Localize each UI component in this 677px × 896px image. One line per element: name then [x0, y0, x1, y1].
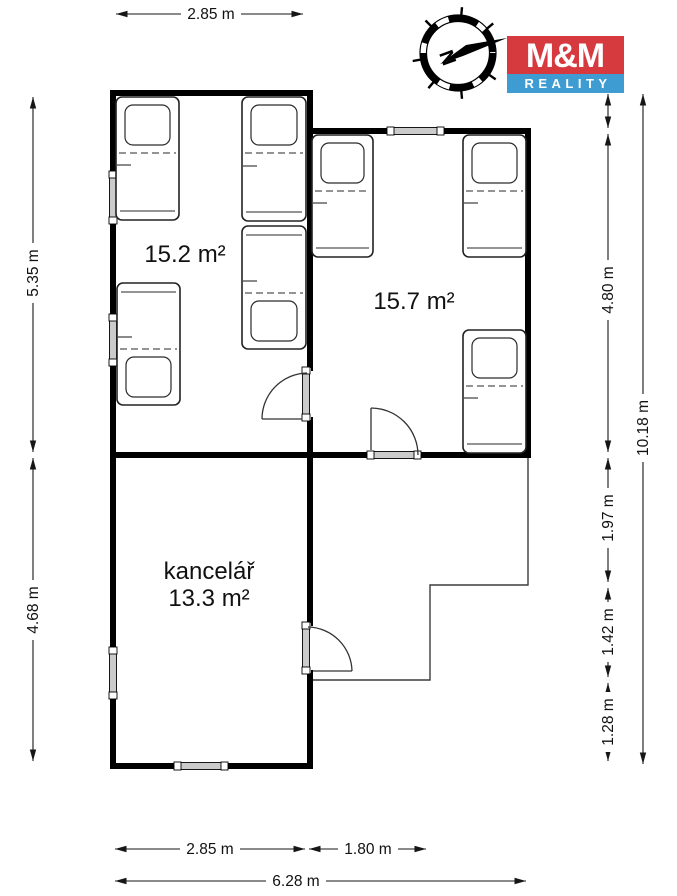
dimension-bottom-office: 2.85 m — [115, 840, 305, 858]
door — [262, 367, 311, 421]
bed — [312, 135, 373, 257]
logo-text-reality: REALITY — [524, 76, 611, 91]
bed — [242, 97, 306, 221]
door — [301, 622, 352, 674]
dimension-bottom-annex: 1.80 m — [309, 840, 426, 858]
bed — [463, 135, 526, 257]
compass-icon: N — [413, 7, 507, 99]
compass-north-label: N — [434, 47, 460, 68]
dimension-right-bedroom2: 4.80 m — [599, 134, 617, 452]
dimension-label: 4.80 m — [600, 266, 617, 313]
floor-plan: 15.2 m² 15.7 m² kancelář 13.3 m² 2.85 m … — [0, 0, 677, 896]
window — [174, 761, 228, 771]
dimension-label: 4.68 m — [25, 586, 42, 633]
dimension-label: 2.85 m — [186, 841, 233, 858]
dimension-right-annex-middle: 1.42 m — [599, 588, 617, 677]
bed — [116, 97, 179, 220]
dimension-top-width: 2.85 m — [116, 5, 303, 23]
dimension-label: 1.28 m — [600, 698, 617, 745]
dimension-left-upper: 5.35 m — [24, 97, 42, 452]
dimension-label: 1.97 m — [600, 494, 617, 541]
dimension-bottom-total: 6.28 m — [115, 872, 526, 890]
logo-text-mm: M&M — [526, 37, 604, 75]
dimension-label: 1.80 m — [344, 841, 391, 858]
room-area-bedroom2: 15.7 m² — [373, 288, 454, 315]
dimension-left-lower: 4.68 m — [24, 458, 42, 761]
bed — [463, 330, 526, 453]
dimension-label: 10.18 m — [635, 400, 652, 456]
floor-plan-svg: 15.2 m² 15.7 m² kancelář 13.3 m² 2.85 m … — [0, 0, 677, 896]
dimension-label: 1.42 m — [600, 608, 617, 655]
bed — [117, 283, 180, 405]
dimension-right-total: 10.18 m — [634, 94, 652, 764]
room-area-office: 13.3 m² — [168, 585, 249, 612]
room-name-office: kancelář — [164, 558, 256, 585]
window — [108, 647, 118, 699]
dimension-label: 6.28 m — [272, 873, 319, 890]
annex-outline — [313, 458, 528, 680]
window — [387, 126, 444, 136]
room-area-bedroom1: 15.2 m² — [144, 241, 225, 268]
dimension-right-annex-lower: 1.28 m — [599, 683, 617, 761]
mm-reality-logo: M&M REALITY — [507, 36, 624, 93]
dimension-label: 5.35 m — [25, 249, 42, 296]
dimension-right-annex-upper: 1.97 m — [599, 458, 617, 582]
dimension-label: 2.85 m — [187, 6, 234, 23]
bed — [242, 226, 306, 349]
door — [367, 408, 421, 460]
